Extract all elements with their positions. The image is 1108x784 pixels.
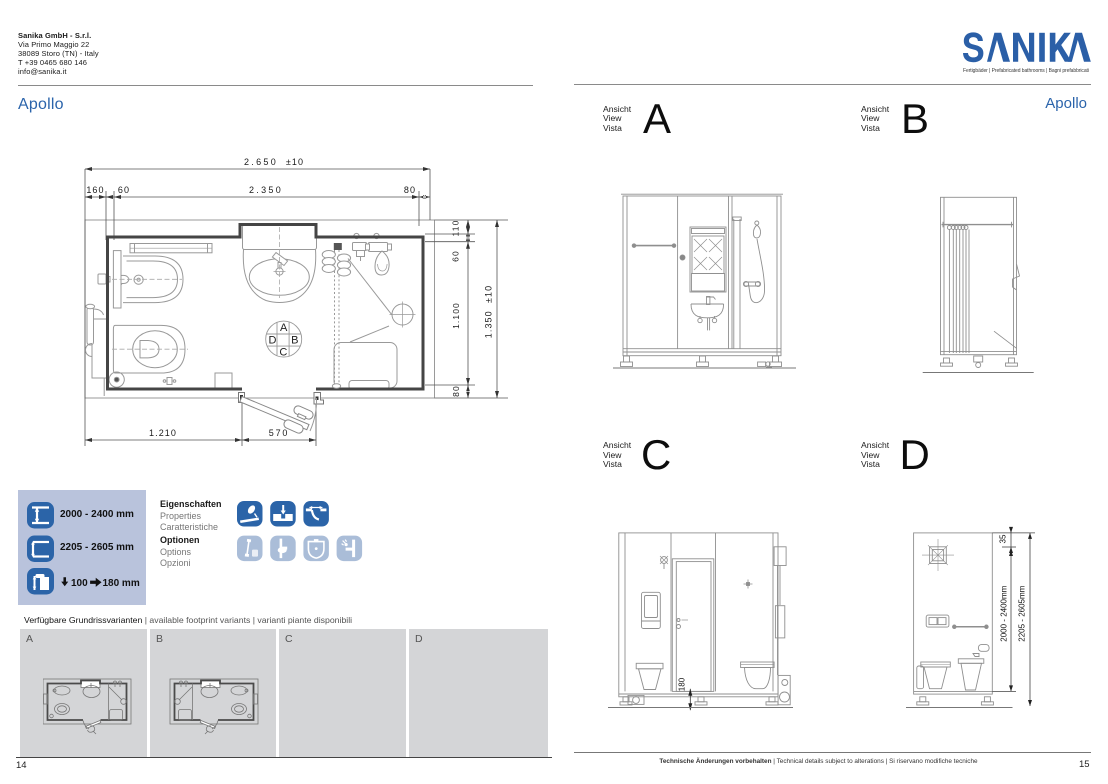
svg-text:2.650: 2.650 [244, 157, 278, 167]
svg-text:110: 110 [451, 220, 461, 237]
svg-text:35: 35 [999, 534, 1008, 543]
svg-text:60: 60 [451, 250, 461, 262]
svg-text:180: 180 [678, 677, 687, 691]
svg-text:1.350 ±10: 1.350 ±10 [484, 285, 494, 338]
svg-text:80: 80 [451, 385, 461, 397]
svg-text:B: B [291, 335, 298, 347]
svg-text:160: 160 [86, 185, 104, 195]
svg-text:60: 60 [118, 185, 130, 195]
svg-text:Fertigbäder | Prefabricated ba: Fertigbäder | Prefabricated bathrooms | … [963, 68, 1089, 74]
svg-text:C: C [279, 347, 287, 359]
svg-text:±10: ±10 [286, 157, 304, 167]
svg-text:D: D [269, 335, 277, 347]
svg-text:A: A [280, 322, 288, 334]
svg-text:2205 - 2605mm: 2205 - 2605mm [1018, 585, 1027, 641]
svg-text:2.350: 2.350 [249, 185, 283, 195]
svg-text:1.210: 1.210 [149, 428, 177, 438]
svg-text:2000 - 2400mm: 2000 - 2400mm [1000, 585, 1009, 641]
svg-text:1.100: 1.100 [451, 302, 461, 329]
svg-text:80: 80 [404, 185, 416, 195]
svg-text:570: 570 [269, 428, 289, 438]
